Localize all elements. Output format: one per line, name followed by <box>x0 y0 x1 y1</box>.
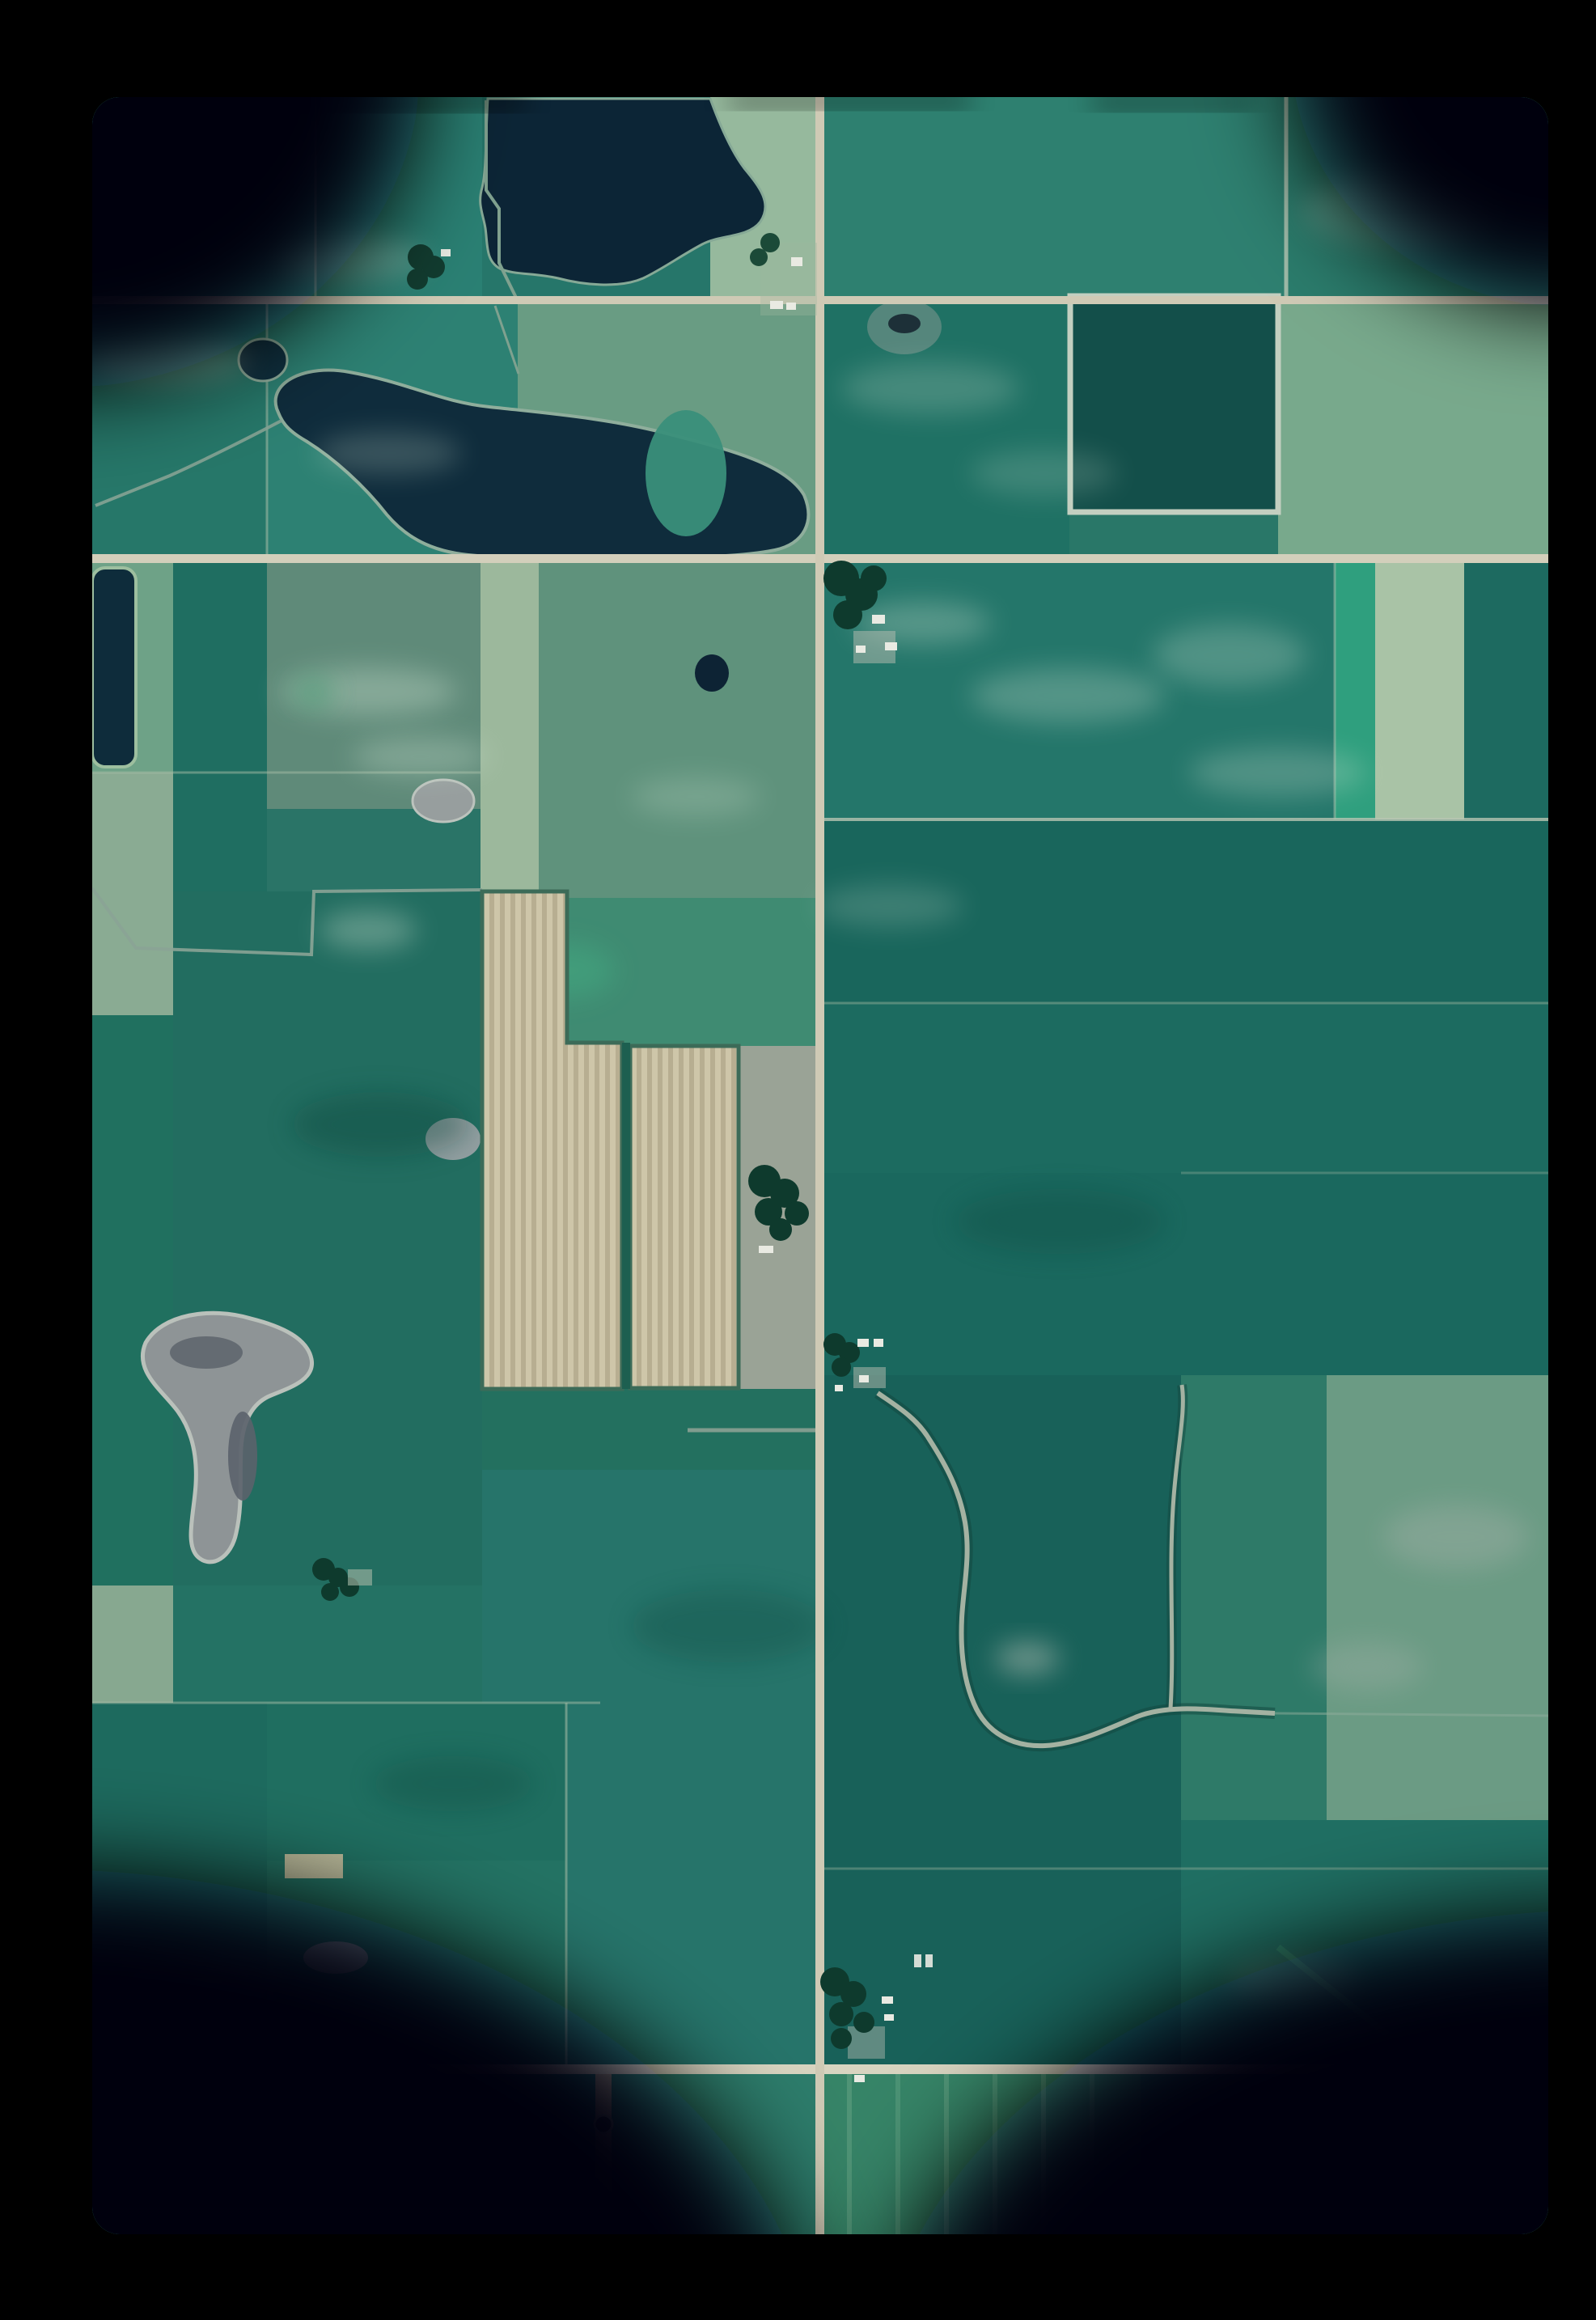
mottle-6 <box>971 451 1116 496</box>
field-left-sage-column <box>92 773 173 1015</box>
farm-tan-trees-5 <box>769 1218 792 1241</box>
mottle-gray-se-1 <box>1383 1505 1529 1569</box>
mottle-4 <box>315 432 461 474</box>
field-band1-right-3 <box>1278 296 1548 554</box>
mottle-dark-4 <box>372 1756 534 1811</box>
field-mid-wide-left <box>482 1470 819 1703</box>
farm-center-trees-3 <box>833 600 862 629</box>
farm-south-trees-3 <box>829 2002 853 2026</box>
farm-lake-east-trees-2 <box>750 248 768 266</box>
farm-slough-patch <box>348 1569 372 1585</box>
field-right-mid-3 <box>819 1173 1548 1375</box>
field-left-lower-edge <box>92 1585 173 1703</box>
farm-north-trees-3 <box>407 269 428 290</box>
mottle-11 <box>1189 748 1367 797</box>
mottle-green-small <box>294 679 333 706</box>
field-left-mid <box>92 1015 173 1585</box>
farm-lake-east-building-2 <box>770 301 783 309</box>
farm-creek-building-3 <box>859 1375 869 1382</box>
farm-slough-trees-4 <box>321 1583 339 1601</box>
farm-creek-yard <box>853 1367 886 1388</box>
road-vertical-main <box>815 97 824 2234</box>
pond-left-edge <box>92 568 136 767</box>
farm-south-marker-1 <box>914 1954 921 1967</box>
gray-pond-mid <box>413 780 474 822</box>
aerial-photo <box>0 0 1596 2320</box>
mottle-9 <box>971 668 1165 723</box>
field-se-pale <box>1327 1375 1548 1820</box>
mottle-dark-3 <box>955 1189 1165 1254</box>
farm-center-building-2 <box>856 646 866 653</box>
pond-dot-west <box>695 654 729 692</box>
farm-tan-building <box>759 1246 773 1253</box>
plowed-field-right <box>630 1046 739 1388</box>
mottle-10 <box>1153 624 1306 686</box>
pond-dot-east <box>888 314 921 333</box>
pond-island <box>646 410 726 536</box>
farm-creek-building-1 <box>857 1339 869 1347</box>
mottle-5 <box>841 362 1019 414</box>
farm-south-trees-4 <box>853 2012 874 2033</box>
farm-center-building-1 <box>872 615 885 624</box>
field-band2-mid <box>539 563 819 898</box>
farm-creek-building-2 <box>874 1339 883 1347</box>
mottle-light-16 <box>817 885 963 927</box>
field-bottomleft-d <box>566 1703 819 2064</box>
farm-center-building-3 <box>885 642 897 650</box>
field-band2-left <box>173 563 267 898</box>
farm-creek-trees-3 <box>832 1357 851 1377</box>
mottle-14 <box>631 777 760 816</box>
farm-creek-building-4 <box>835 1385 843 1391</box>
slough-dark-1 <box>170 1336 243 1369</box>
farm-south-building-1 <box>882 1996 893 2004</box>
field-strip-dark <box>1464 563 1548 819</box>
mottle-gray-se-2 <box>1310 1642 1424 1691</box>
slide-mount <box>0 0 1596 2320</box>
farm-north-building <box>441 249 451 256</box>
mottle-light-17 <box>995 1642 1060 1674</box>
field-se-medium <box>1181 1375 1327 1820</box>
farm-south-trees-5 <box>831 2028 852 2049</box>
farm-lake-east-building-1 <box>791 257 802 266</box>
field-band2-sage-strip <box>480 563 539 898</box>
farm-south-building-3 <box>854 2075 865 2082</box>
field-band1-right-1 <box>819 296 1069 554</box>
plowed-mini-patch <box>285 1854 343 1878</box>
farm-south-building-2 <box>884 2014 894 2021</box>
aerial-photo-svg <box>0 0 1596 2320</box>
slough-dark-2 <box>228 1412 257 1501</box>
farm-lake-east-trees-1 <box>760 233 780 252</box>
mottle-13 <box>352 737 489 776</box>
film-edge-top-3 <box>1092 97 1254 107</box>
farm-center-trees-4 <box>861 565 887 591</box>
farm-lake-east-building-3 <box>786 303 796 310</box>
farm-south-marker-2 <box>925 1954 933 1967</box>
field-strip-sage <box>1375 563 1464 819</box>
mottle-light-15 <box>320 911 417 950</box>
field-left-lower <box>173 1585 482 1703</box>
mottle-dark-2 <box>631 1590 825 1662</box>
plowed-gap-strip <box>622 1043 630 1389</box>
field-top-right-1 <box>819 97 1286 296</box>
field-right-mid-2 <box>819 1003 1548 1173</box>
mottle-dark-1 <box>291 1092 469 1157</box>
